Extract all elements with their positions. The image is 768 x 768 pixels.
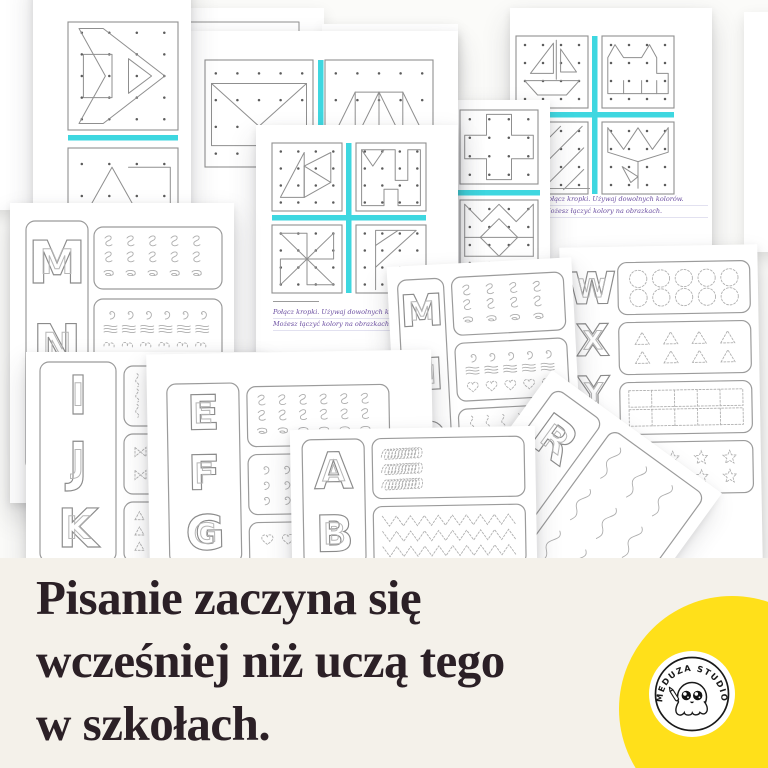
svg-text:I: I: [72, 377, 84, 413]
svg-text:B: B: [323, 517, 346, 551]
svg-text:E: E: [193, 397, 213, 430]
worksheet-art: AABB: [290, 426, 537, 568]
headline-line: wcześniej niż uczą tego: [36, 629, 505, 692]
svg-text:J: J: [70, 444, 84, 480]
caption-band: MEDUZA STUDIO Pisanie zaczyna się wcześn…: [0, 558, 768, 768]
meduza-studio-logo: MEDUZA STUDIO: [648, 650, 736, 738]
svg-text:X: X: [583, 326, 604, 356]
svg-text:W: W: [578, 274, 607, 304]
headline-line: w szkołach.: [36, 692, 505, 755]
worksheet-page-letter-tracing-AB: AABB: [290, 426, 537, 568]
background-sheet: [744, 12, 768, 252]
headline-line: Pisanie zaczyna się: [36, 566, 505, 629]
svg-text:K: K: [66, 511, 91, 547]
promo-image: Połącz kropki. Używaj dowolnych kolorów.…: [0, 0, 768, 768]
svg-text:M: M: [40, 243, 74, 283]
worksheet-art: [744, 12, 768, 252]
worksheet-art: [444, 100, 550, 282]
svg-text:A: A: [322, 454, 346, 488]
octopus-tentacles: [676, 702, 707, 715]
headline: Pisanie zaczyna się wcześniej niż uczą t…: [36, 566, 505, 756]
brand-badge: MEDUZA STUDIO: [648, 650, 736, 738]
worksheet-page-dot-grid-cross-crown: [444, 100, 550, 282]
svg-text:F: F: [194, 457, 214, 490]
svg-text:G: G: [194, 517, 217, 550]
svg-text:M: M: [409, 296, 436, 326]
worksheet-instruction: Połącz kropki. Używaj dowolnych kolorów.…: [544, 188, 708, 218]
